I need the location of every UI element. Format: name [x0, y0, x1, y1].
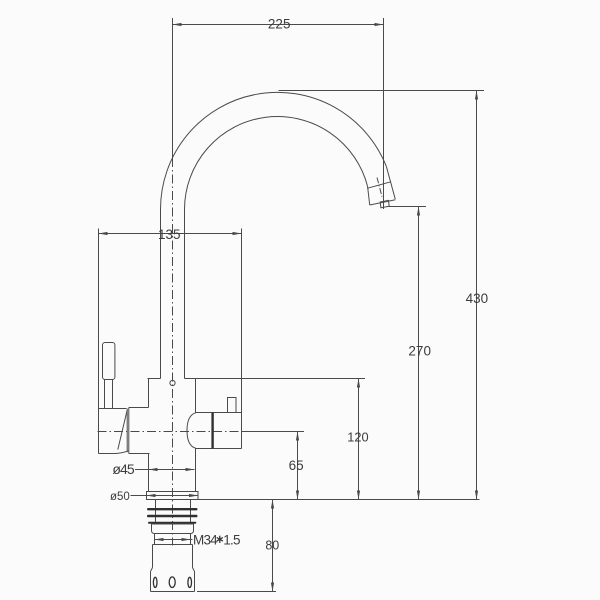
svg-text:135: 135	[158, 227, 181, 242]
svg-text:80: 80	[265, 538, 279, 552]
svg-text:430: 430	[466, 291, 489, 306]
svg-text:270: 270	[408, 343, 431, 358]
svg-text:1.5: 1.5	[223, 532, 240, 547]
svg-text:ø45: ø45	[112, 461, 135, 477]
svg-text:120: 120	[347, 429, 368, 444]
svg-text:65: 65	[289, 458, 304, 473]
svg-text:M34: M34	[193, 532, 218, 547]
svg-text:225: 225	[268, 17, 291, 32]
svg-text:ø50: ø50	[110, 491, 130, 503]
